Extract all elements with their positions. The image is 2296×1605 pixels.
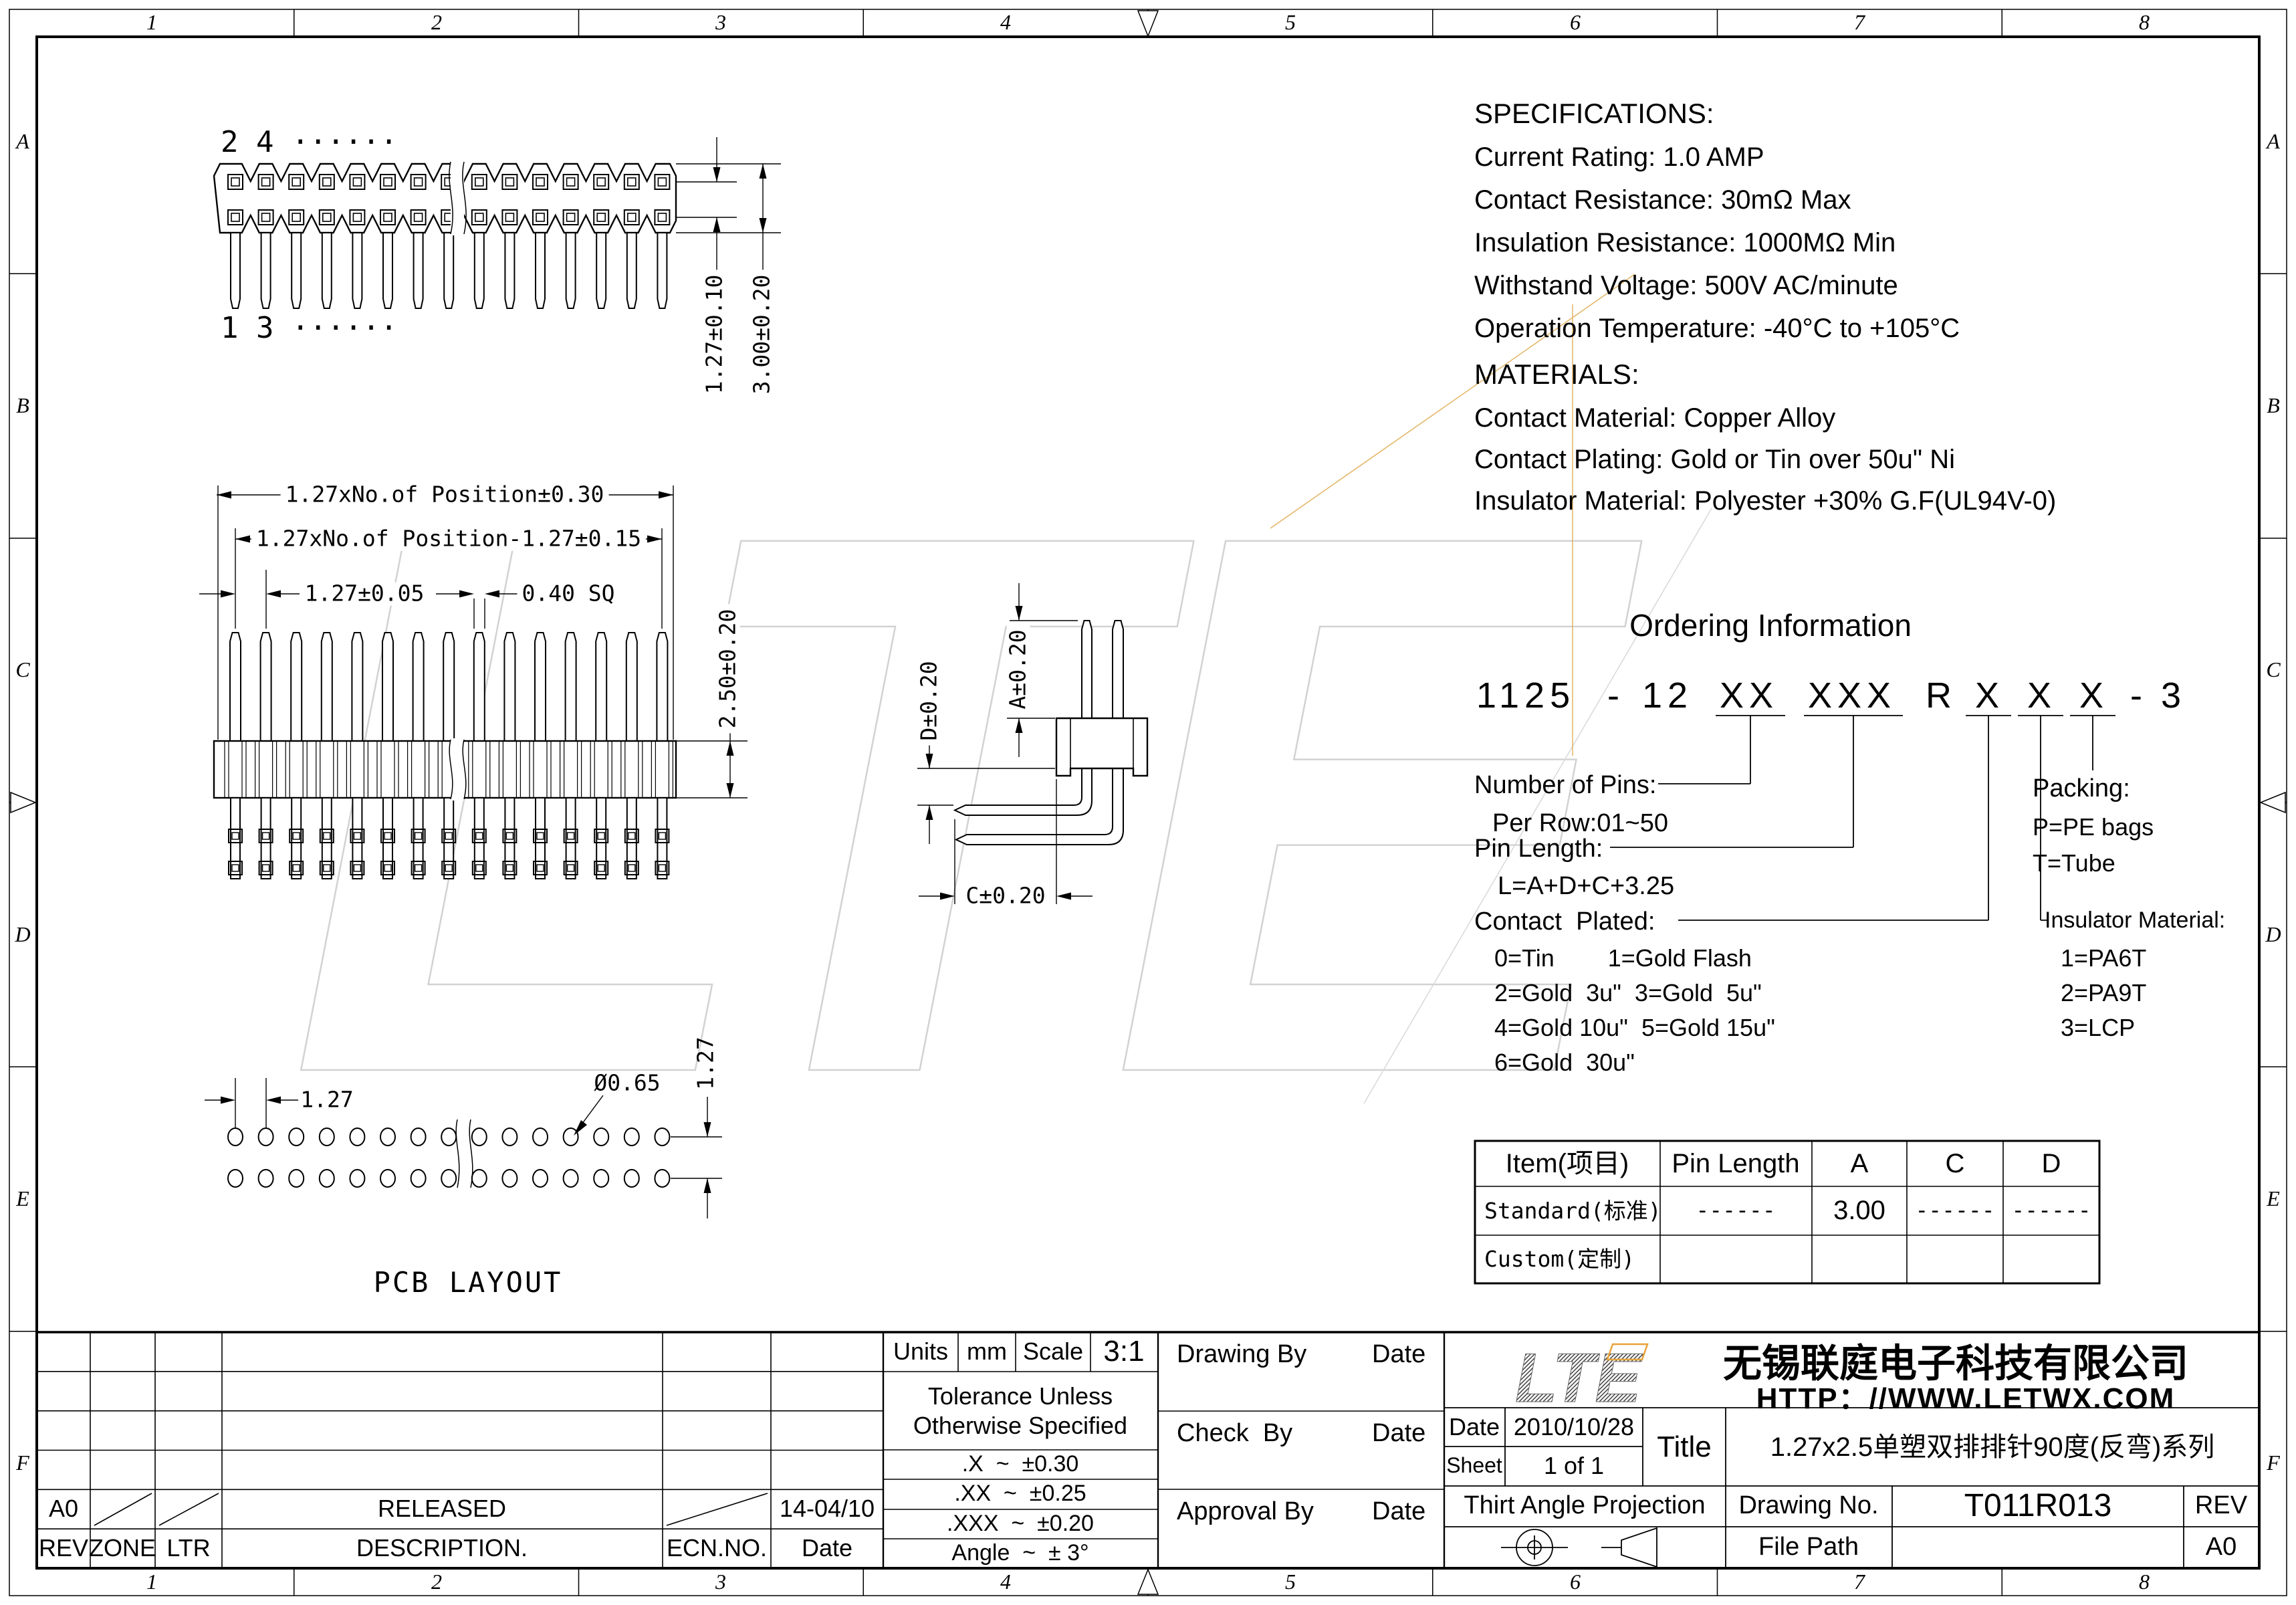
table-header-c: C: [1946, 1150, 1965, 1178]
dim-front-inner: 1.27xNo.of Position-1.27±0.15: [251, 528, 646, 551]
spec-line: Withstand Voltage: 500V AC/minute: [1474, 272, 1898, 300]
engineering-drawing-sheet: LTE: [0, 0, 2296, 1605]
drawing-no-value: T011R013: [1964, 1489, 2112, 1523]
title-value: 1.27x2.5单塑双排排针90度(反弯)系列: [1770, 1433, 2215, 1461]
units-label: Units: [893, 1339, 948, 1364]
pn-seg-insulator: X: [2027, 677, 2051, 715]
plating-row: 0=Tin 1=Gold Flash: [1494, 946, 1752, 971]
border-col-label: 2: [431, 11, 442, 34]
pn-seg-3: 3: [2161, 677, 2181, 715]
released-date: 14-04/10: [780, 1496, 875, 1521]
tolerance-note-2: Otherwise Specified: [913, 1413, 1127, 1438]
tolerance-xxx: .XXX ~ ±0.20: [947, 1512, 1094, 1536]
dim-front-body: 2.50±0.20: [717, 605, 740, 734]
pn-seg-length: XXX: [1808, 677, 1896, 715]
border-row-label: E: [16, 1188, 29, 1210]
border-row-label: A: [16, 130, 29, 153]
border-row-label: F: [2267, 1452, 2280, 1475]
ltr-header: LTR: [166, 1535, 210, 1561]
border-col-label: 2: [431, 1571, 442, 1594]
bottom-center-marker: [1138, 1570, 1158, 1594]
dim-top-pitch: 1.27±0.10: [703, 270, 727, 399]
insulator-row: 2=PA9T: [2061, 980, 2146, 1006]
drawing-by-label: Drawing By: [1177, 1342, 1306, 1368]
spec-line: Insulation Resistance: 1000MΩ Min: [1474, 229, 1896, 257]
pin-length-detail: L=A+D+C+3.25: [1498, 873, 1674, 900]
tolerance-xx: .XX ~ ±0.25: [954, 1482, 1086, 1506]
tolerance-angle: Angle ~ ± 3°: [951, 1541, 1088, 1566]
description-header: DESCRIPTION.: [356, 1535, 528, 1561]
border-row-label: A: [2267, 130, 2280, 153]
border-col-label: 4: [1000, 1571, 1011, 1594]
table-header-d: D: [2042, 1150, 2061, 1178]
dim-side-d: D±0.20: [918, 656, 941, 745]
pn-seg-pins: XX: [1720, 677, 1778, 715]
border-col-label: 7: [1854, 1571, 1865, 1594]
pn-seg-packing: X: [2079, 677, 2103, 715]
third-angle-projection-symbol: [1501, 1528, 1657, 1567]
title-label: Title: [1657, 1432, 1712, 1463]
date-label: Date: [1449, 1414, 1500, 1440]
rev-header: REV: [39, 1535, 88, 1561]
border-col-label: 6: [1570, 1571, 1581, 1594]
date-header: Date: [802, 1535, 852, 1561]
lte-logo: LTE: [1515, 1340, 1647, 1417]
top-view: [214, 137, 781, 387]
dim-front-total: 1.27xNo.of Position±0.30: [281, 484, 609, 507]
dim-pcb-pitch-h: 1.27: [300, 1089, 353, 1112]
pin-length-label: Pin Length:: [1474, 836, 1603, 863]
border-col-label: 3: [715, 1571, 726, 1594]
material-line: Insulator Material: Polyester +30% G.F(U…: [1474, 487, 2056, 515]
approval-by-label: Approval By: [1177, 1499, 1314, 1525]
table-header-a: A: [1851, 1150, 1869, 1178]
table-cell: ------: [2011, 1199, 2091, 1222]
rev-value: A0: [49, 1496, 78, 1521]
table-cell: ------: [1915, 1199, 1994, 1222]
plating-row: 4=Gold 10u" 5=Gold 15u": [1494, 1015, 1775, 1041]
spec-line: Operation Temperature: -40°C to +105°C: [1474, 314, 1960, 342]
table-header-pin-length: Pin Length: [1672, 1150, 1799, 1178]
check-by-date-label: Date: [1372, 1420, 1425, 1447]
pn-seg-pitch: 12: [1642, 677, 1693, 715]
units-value: mm: [967, 1339, 1007, 1364]
border-row-label: E: [2267, 1188, 2280, 1210]
spec-line: Contact Resistance: 30mΩ Max: [1474, 186, 1851, 214]
dim-pcb-hole: Ø0.65: [594, 1072, 660, 1095]
border-col-label: 1: [146, 11, 157, 34]
released-text: RELEASED: [378, 1496, 506, 1521]
dim-side-c: C±0.20: [961, 885, 1050, 908]
border-col-label: 3: [715, 11, 726, 34]
sheet-size: A0: [2206, 1534, 2236, 1561]
plating-label: Contact Plated:: [1474, 909, 1655, 936]
material-line: Contact Material: Copper Alloy: [1474, 404, 1835, 432]
material-line: Contact Plating: Gold or Tin over 50u" N…: [1474, 445, 1955, 473]
border-row-label: C: [2266, 659, 2280, 681]
right-center-marker: [2261, 792, 2285, 813]
packing-row: P=PE bags: [2033, 815, 2154, 840]
rev-col-label: REV: [2195, 1493, 2247, 1519]
sheet-label: Sheet: [1446, 1455, 1502, 1477]
border-col-label: 1: [146, 1571, 157, 1594]
pins-label: Number of Pins:: [1474, 772, 1656, 799]
pins-detail: Per Row:01~50: [1492, 811, 1668, 837]
ordering-title: Ordering Information: [1629, 609, 1912, 641]
file-path-label: File Path: [1758, 1534, 1859, 1561]
approval-by-date-label: Date: [1372, 1499, 1425, 1525]
specifications-title: SPECIFICATIONS:: [1474, 99, 1714, 128]
border-row-label: B: [2267, 395, 2280, 417]
materials-title: MATERIALS:: [1474, 360, 1639, 389]
pcb-layout-label: PCB LAYOUT: [374, 1268, 563, 1297]
left-center-marker: [11, 792, 35, 813]
pin-row-label-13: 1 3 ······: [221, 313, 398, 344]
border-row-label: D: [15, 924, 30, 946]
pn-seg-plating: X: [1975, 677, 1999, 715]
dim-side-a: A±0.20: [1007, 625, 1030, 714]
pn-seg-dash2: -: [2130, 677, 2142, 715]
drawing-by-date-label: Date: [1372, 1342, 1425, 1368]
drawing-no-label: Drawing No.: [1738, 1493, 1878, 1519]
border-row-label: D: [2265, 924, 2281, 946]
border-col-label: 8: [2139, 1571, 2150, 1594]
table-cell: ------: [1696, 1199, 1775, 1222]
check-by-label: Check By: [1177, 1420, 1292, 1447]
insulator-row: 1=PA6T: [2061, 946, 2146, 971]
zone-header: ZONE: [89, 1535, 156, 1561]
company-url: HTTP：//WWW.LETWX.COM: [1756, 1384, 2176, 1414]
tolerance-note-1: Tolerance Unless: [928, 1384, 1113, 1409]
pn-seg-dash: -: [1607, 677, 1619, 715]
packing-label: Packing:: [2033, 776, 2130, 802]
border-col-label: 5: [1285, 11, 1296, 34]
table-cell-custom: Custom(定制): [1484, 1248, 1635, 1271]
packing-row: T=Tube: [2033, 851, 2115, 876]
border-col-label: 8: [2139, 11, 2150, 34]
plating-row: 6=Gold 30u": [1494, 1050, 1635, 1075]
dim-front-pin: 0.40 SQ: [517, 582, 619, 606]
dim-pcb-pitch-v: 1.27: [695, 1037, 718, 1089]
dim-top-height: 3.00±0.20: [751, 270, 774, 399]
spec-line: Current Rating: 1.0 AMP: [1474, 143, 1764, 171]
table-cell-a-value: 3.00: [1833, 1196, 1885, 1224]
dim-front-pitch: 1.27±0.05: [300, 582, 429, 606]
border-col-label: 7: [1854, 11, 1865, 34]
border-col-label: 5: [1285, 1571, 1296, 1594]
border-row-label: B: [16, 395, 29, 417]
tolerance-x: .X ~ ±0.30: [962, 1453, 1079, 1477]
lte-logo-text: LTE: [1515, 1340, 1643, 1417]
table-header-item: Item(项目): [1506, 1150, 1629, 1178]
border-col-label: 6: [1570, 11, 1581, 34]
insulator-row: 3=LCP: [2061, 1015, 2135, 1041]
ecn-header: ECN.NO.: [667, 1535, 767, 1561]
border-col-label: 4: [1000, 11, 1011, 34]
pn-seg-r: R: [1926, 677, 1952, 715]
pn-seg-series: 1125: [1476, 677, 1575, 715]
pin-row-label-24: 2 4 ······: [221, 127, 398, 158]
date-value: 2010/10/28: [1514, 1414, 1634, 1440]
table-cell-standard: Standard(标准): [1484, 1200, 1661, 1223]
company-name: 无锡联庭电子科技有限公司: [1723, 1344, 2188, 1385]
plating-row: 2=Gold 3u" 3=Gold 5u": [1494, 980, 1762, 1006]
insulator-label: Insulator Material:: [2045, 909, 2225, 933]
scale-value: 3:1: [1103, 1336, 1144, 1367]
border-row-label: F: [16, 1452, 29, 1475]
sheet-value: 1 of 1: [1544, 1453, 1604, 1479]
scale-label: Scale: [1023, 1339, 1083, 1364]
projection-label: Thirt Angle Projection: [1464, 1493, 1705, 1519]
border-row-label: C: [15, 659, 29, 681]
top-center-marker: [1138, 11, 1158, 36]
